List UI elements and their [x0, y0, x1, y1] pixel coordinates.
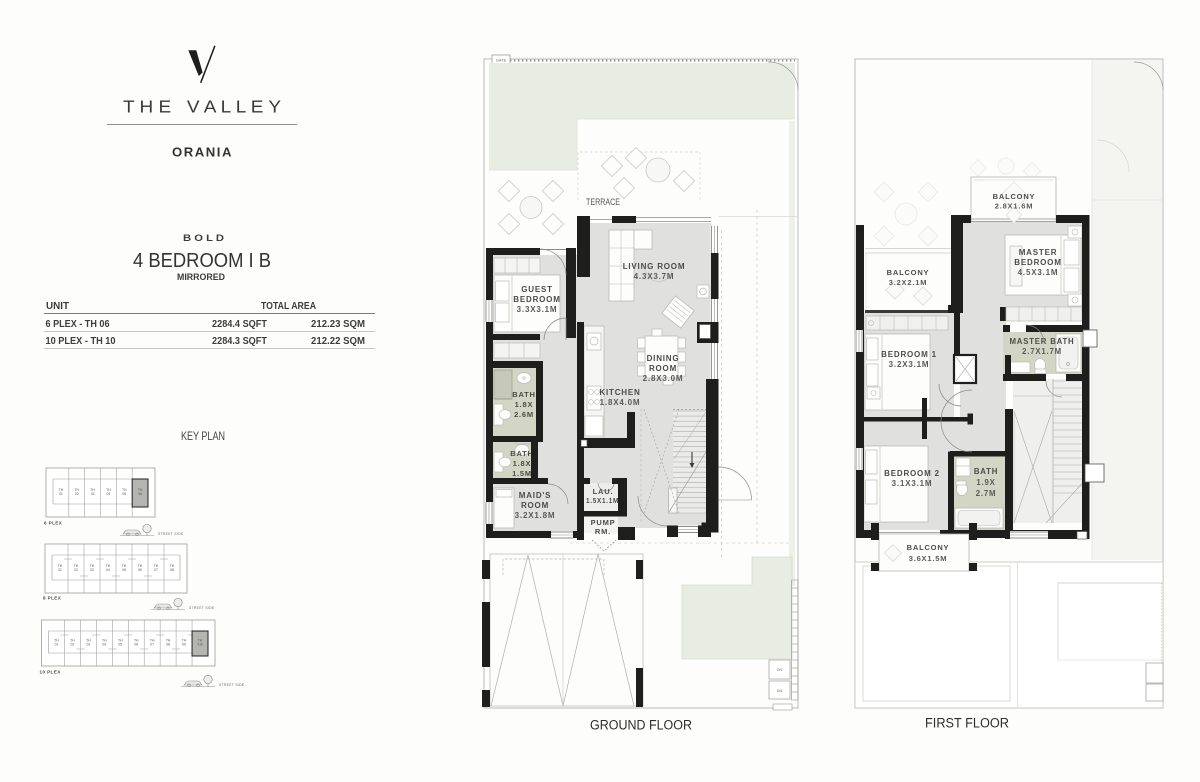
svg-text:3.2X1.8M: 3.2X1.8M — [515, 511, 556, 520]
svg-text:05: 05 — [118, 643, 122, 647]
svg-text:PUMP: PUMP — [591, 518, 616, 527]
svg-text:LIVING ROOM: LIVING ROOM — [623, 262, 686, 271]
svg-text:10 PLEX: 10 PLEX — [40, 670, 62, 675]
svg-text:08: 08 — [170, 568, 174, 572]
svg-text:STREET SIDE: STREET SIDE — [189, 606, 215, 610]
svg-text:DN: DN — [777, 668, 783, 672]
svg-text:01: 01 — [55, 643, 59, 647]
svg-text:06: 06 — [138, 492, 142, 496]
svg-text:UNIT: UNIT — [46, 301, 69, 312]
svg-text:ORANIA: ORANIA — [172, 145, 233, 160]
svg-text:FIRST FLOOR: FIRST FLOOR — [925, 716, 1009, 731]
svg-text:1.5X1.1M: 1.5X1.1M — [586, 498, 619, 505]
svg-text:BATH: BATH — [974, 467, 998, 476]
svg-text:TOTAL AREA: TOTAL AREA — [261, 301, 316, 312]
svg-text:2284.3 SQFT: 2284.3 SQFT — [212, 336, 267, 347]
svg-text:BALCONY: BALCONY — [993, 192, 1036, 201]
svg-text:3.2X3.1M: 3.2X3.1M — [889, 360, 930, 369]
svg-text:GROUND FLOOR: GROUND FLOOR — [590, 718, 692, 733]
svg-text:6 PLEX: 6 PLEX — [44, 521, 63, 526]
svg-text:10 PLEX - TH 10: 10 PLEX - TH 10 — [46, 336, 116, 347]
svg-text:04: 04 — [102, 643, 106, 647]
svg-text:GATE: GATE — [496, 58, 507, 63]
svg-text:2284.4 SQFT: 2284.4 SQFT — [212, 319, 267, 330]
svg-text:1.8X4.0M: 1.8X4.0M — [600, 398, 641, 407]
svg-text:MAID'S: MAID'S — [519, 491, 551, 500]
svg-text:2.8X1.6M: 2.8X1.6M — [995, 202, 1034, 211]
svg-text:02: 02 — [74, 568, 78, 572]
svg-text:RM.: RM. — [595, 527, 611, 536]
svg-text:KEY PLAN: KEY PLAN — [181, 429, 225, 443]
svg-text:6 PLEX - TH 06: 6 PLEX - TH 06 — [46, 319, 110, 330]
svg-text:ROOM: ROOM — [649, 364, 677, 373]
svg-text:STREET SIDE: STREET SIDE — [219, 683, 245, 687]
svg-text:LAU.: LAU. — [593, 487, 614, 496]
svg-text:07: 07 — [154, 568, 158, 572]
svg-text:TERRACE: TERRACE — [586, 197, 620, 208]
svg-text:3.1X3.1M: 3.1X3.1M — [892, 479, 933, 488]
svg-text:8 PLEX: 8 PLEX — [43, 596, 62, 601]
svg-text:BALCONY: BALCONY — [907, 543, 950, 552]
svg-text:BEDROOM: BEDROOM — [513, 295, 560, 304]
svg-text:1.8X: 1.8X — [515, 400, 534, 409]
svg-text:DINING: DINING — [647, 354, 680, 363]
svg-text:STREET SIDE: STREET SIDE — [158, 532, 184, 536]
svg-text:212.23 SQM: 212.23 SQM — [311, 319, 365, 330]
svg-text:KITCHEN: KITCHEN — [599, 388, 640, 397]
svg-text:2.6M: 2.6M — [514, 410, 534, 419]
svg-text:2.7M: 2.7M — [976, 489, 997, 498]
svg-text:4.5X3.1M: 4.5X3.1M — [1018, 268, 1059, 277]
svg-text:4 BEDROOM I B: 4 BEDROOM I B — [133, 250, 271, 272]
svg-text:05: 05 — [122, 492, 126, 496]
svg-text:1.8X: 1.8X — [513, 459, 532, 468]
svg-text:MIRRORED: MIRRORED — [177, 272, 225, 283]
svg-text:BEDROOM: BEDROOM — [1014, 258, 1061, 267]
svg-text:02: 02 — [75, 492, 79, 496]
svg-text:01: 01 — [59, 492, 63, 496]
svg-text:06: 06 — [134, 643, 138, 647]
svg-text:03: 03 — [86, 643, 90, 647]
svg-text:BATH: BATH — [512, 390, 535, 399]
svg-text:3.2X2.1M: 3.2X2.1M — [889, 278, 928, 287]
svg-text:BATH: BATH — [510, 449, 533, 458]
svg-text:08: 08 — [166, 643, 170, 647]
svg-text:1.9X: 1.9X — [976, 478, 995, 487]
svg-text:03: 03 — [90, 568, 94, 572]
svg-text:01: 01 — [58, 568, 62, 572]
svg-text:04: 04 — [107, 492, 111, 496]
svg-text:MASTER: MASTER — [1019, 248, 1058, 257]
svg-text:MASTER BATH: MASTER BATH — [1010, 337, 1075, 346]
svg-text:09: 09 — [182, 643, 186, 647]
svg-text:4.3X3.7M: 4.3X3.7M — [634, 272, 675, 281]
svg-text:3.3X3.1M: 3.3X3.1M — [517, 305, 558, 314]
svg-text:04: 04 — [106, 568, 110, 572]
svg-text:2.8X3.0M: 2.8X3.0M — [643, 374, 684, 383]
svg-text:05: 05 — [122, 568, 126, 572]
svg-text:T H E V A L L E Y: T H E V A L L E Y — [123, 97, 281, 117]
svg-text:BALCONY: BALCONY — [887, 268, 930, 277]
svg-text:1.5M: 1.5M — [512, 469, 532, 478]
svg-text:BEDROOM 2: BEDROOM 2 — [884, 469, 940, 478]
svg-text:010: 010 — [197, 643, 203, 647]
svg-text:07: 07 — [150, 643, 154, 647]
svg-text:BEDROOM 1: BEDROOM 1 — [881, 350, 937, 359]
svg-text:02: 02 — [71, 643, 75, 647]
svg-text:ROOM: ROOM — [521, 501, 549, 510]
svg-text:03: 03 — [91, 492, 95, 496]
svg-text:06: 06 — [138, 568, 142, 572]
svg-text:DN: DN — [777, 689, 783, 693]
svg-text:3.6X1.5M: 3.6X1.5M — [909, 554, 948, 563]
svg-text:B O L D: B O L D — [183, 233, 224, 244]
svg-text:2.7X1.7M: 2.7X1.7M — [1022, 347, 1062, 356]
svg-text:GUEST: GUEST — [521, 285, 553, 294]
svg-text:212.22 SQM: 212.22 SQM — [311, 336, 365, 347]
